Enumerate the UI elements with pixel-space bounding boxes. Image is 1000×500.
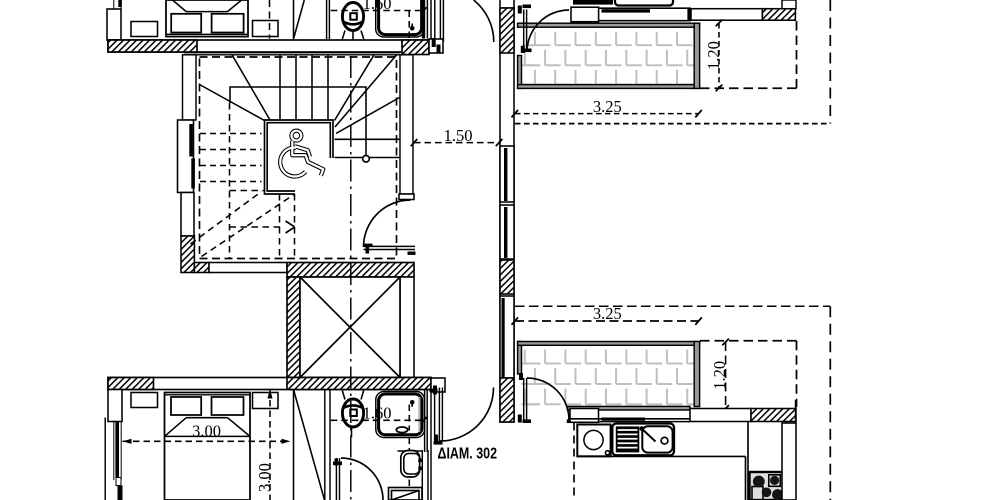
svg-text:1.20: 1.20 <box>710 361 729 390</box>
svg-text:3.00: 3.00 <box>192 421 221 440</box>
svg-text:1.20: 1.20 <box>704 41 723 70</box>
svg-text:ΔIAM. 302: ΔIAM. 302 <box>438 445 498 463</box>
svg-text:3.00: 3.00 <box>255 463 274 492</box>
